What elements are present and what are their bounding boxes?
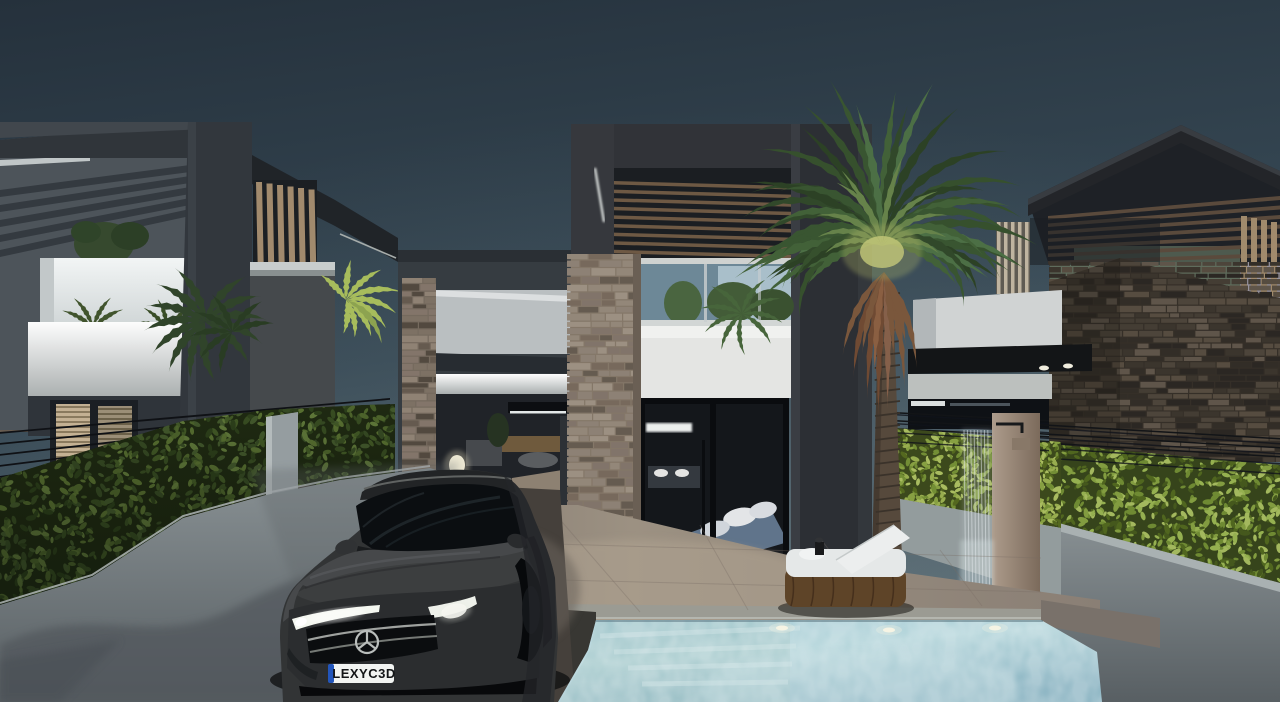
- svg-text:LEXYC3D: LEXYC3D: [332, 666, 395, 681]
